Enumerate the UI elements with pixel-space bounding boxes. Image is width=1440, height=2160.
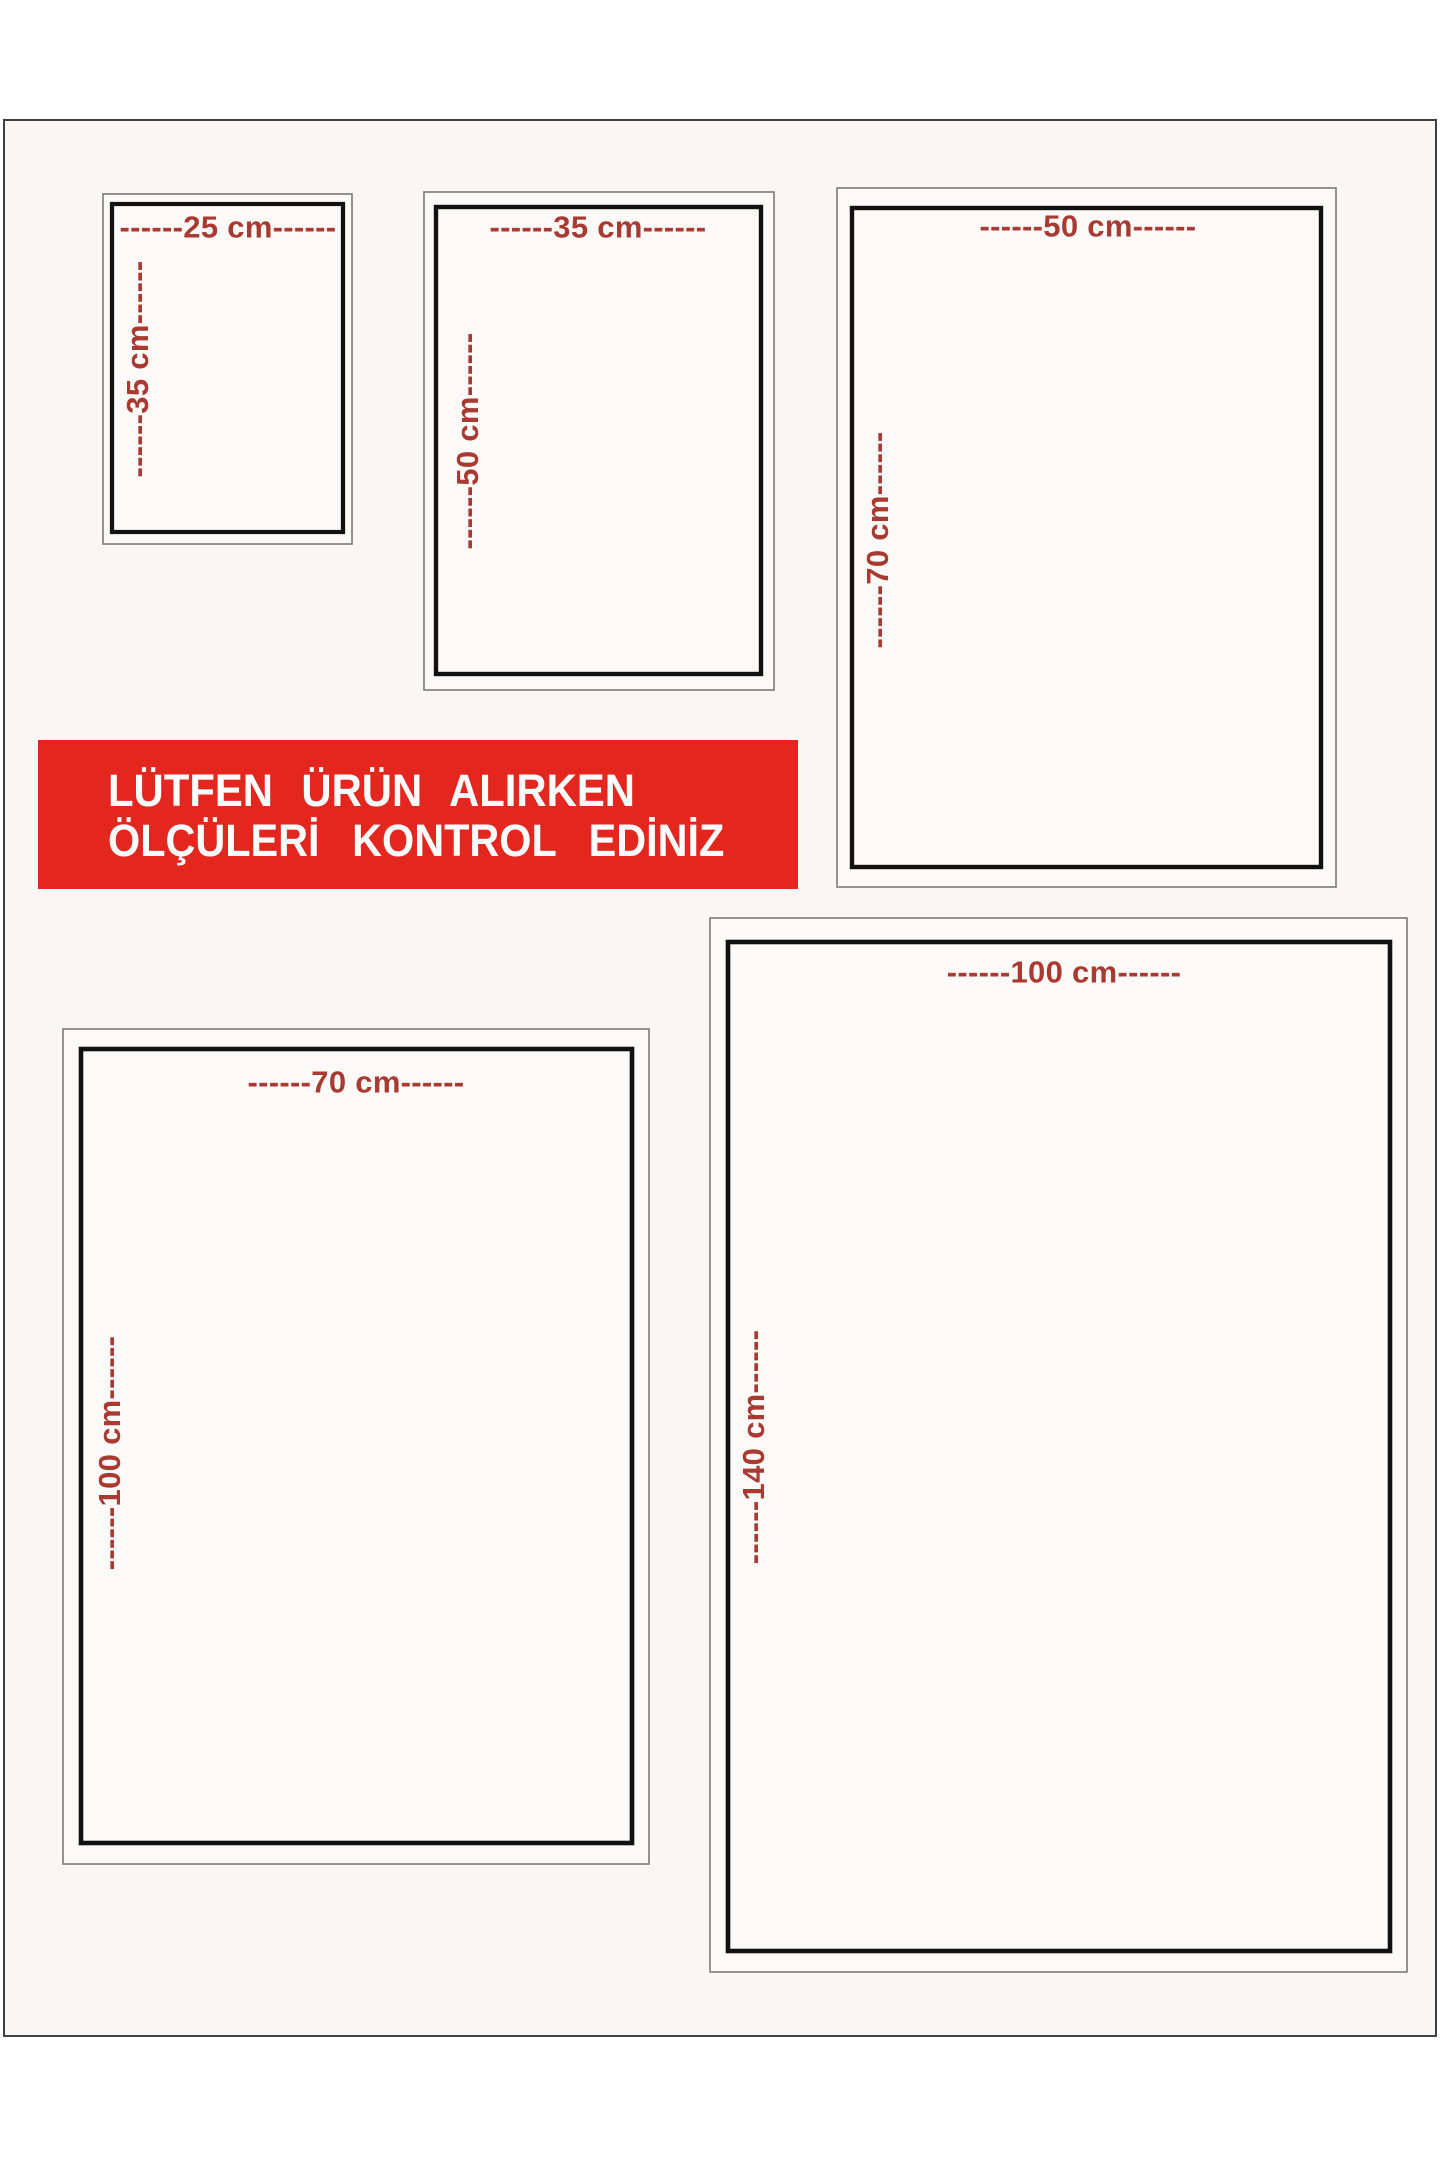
- svg-text:------140 cm------: ------140 cm------: [736, 1330, 771, 1564]
- svg-text:------100 cm------: ------100 cm------: [947, 955, 1181, 990]
- svg-text:------100 cm------: ------100 cm------: [92, 1336, 127, 1570]
- svg-text:LÜTFEN ÜRÜN ALIRKEN: LÜTFEN ÜRÜN ALIRKEN: [108, 766, 635, 817]
- svg-text:------35 cm------: ------35 cm------: [120, 261, 155, 478]
- svg-text:ÖLÇÜLERİ KONTROL EDİNİZ: ÖLÇÜLERİ KONTROL EDİNİZ: [108, 816, 724, 866]
- svg-text:------25 cm------: ------25 cm------: [120, 210, 337, 245]
- svg-text:------70 cm------: ------70 cm------: [860, 432, 895, 649]
- svg-text:------50 cm------: ------50 cm------: [450, 333, 485, 550]
- svg-text:------70 cm------: ------70 cm------: [248, 1065, 465, 1100]
- svg-text:------50 cm------: ------50 cm------: [980, 209, 1197, 244]
- svg-text:------35 cm------: ------35 cm------: [490, 210, 707, 245]
